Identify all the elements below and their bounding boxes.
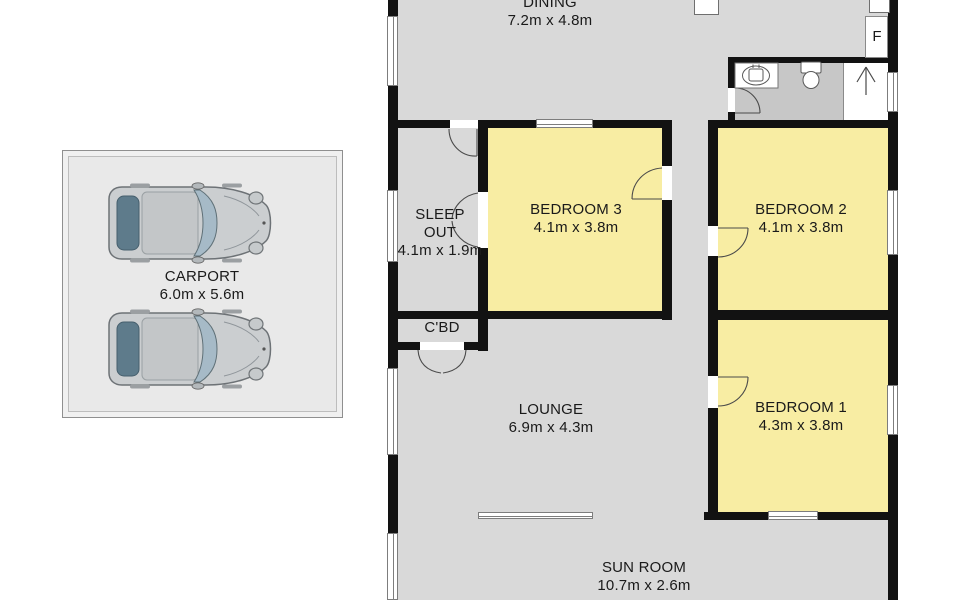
wall xyxy=(708,128,718,226)
window xyxy=(387,533,398,600)
room-dims-sleep-out: 4.1m x 1.9m xyxy=(398,242,483,260)
window xyxy=(869,0,890,13)
room-dims-dining: 7.2m x 4.8m xyxy=(508,12,593,30)
wall xyxy=(708,320,718,376)
wall xyxy=(388,0,398,16)
room-dims-carport: 6.0m x 5.6m xyxy=(160,286,245,304)
room-dims-lounge: 6.9m x 4.3m xyxy=(509,419,594,437)
room-dims-sun-room: 10.7m x 2.6m xyxy=(597,577,690,595)
wall xyxy=(388,311,672,319)
window xyxy=(387,190,398,262)
fridge-label: F xyxy=(872,28,881,46)
room-label-bedroom1: BEDROOM 1 4.3m x 3.8m xyxy=(755,399,847,435)
wall xyxy=(708,256,718,310)
door-opening xyxy=(694,0,719,15)
window xyxy=(768,511,818,520)
wall xyxy=(708,120,898,128)
floor-plan: DINING 7.2m x 4.8m SLEEP OUT 4.1m x 1.9m… xyxy=(0,0,960,600)
wall xyxy=(728,112,735,120)
wall xyxy=(396,342,420,350)
door-opening xyxy=(708,376,718,408)
window xyxy=(536,119,593,128)
room-dims-bedroom3: 4.1m x 3.8m xyxy=(530,219,622,237)
wall xyxy=(388,455,398,533)
room-label-sun-room: SUN ROOM 10.7m x 2.6m xyxy=(597,559,690,595)
room-label-bedroom2: BEDROOM 2 4.1m x 3.8m xyxy=(755,201,847,237)
room-label-lounge: LOUNGE 6.9m x 4.3m xyxy=(509,401,594,437)
window xyxy=(478,512,593,519)
wall xyxy=(888,255,898,385)
window xyxy=(887,72,898,112)
room-label-cupboard: C'BD xyxy=(424,319,459,337)
door-opening xyxy=(708,226,718,256)
wall xyxy=(388,120,450,128)
wall xyxy=(662,120,672,320)
door-opening xyxy=(450,120,478,128)
window xyxy=(387,368,398,455)
room-dims-bedroom2: 4.1m x 3.8m xyxy=(755,219,847,237)
door-opening xyxy=(420,342,464,350)
window xyxy=(887,385,898,435)
room-dims-bedroom1: 4.3m x 3.8m xyxy=(755,417,847,435)
room-label-carport: CARPORT 6.0m x 5.6m xyxy=(160,268,245,304)
door-opening xyxy=(662,166,672,200)
window xyxy=(887,190,898,255)
room-label-sleep-out: SLEEP OUT 4.1m x 1.9m xyxy=(398,206,483,260)
door-opening xyxy=(728,88,735,112)
wall xyxy=(388,86,398,190)
bathroom-floor xyxy=(735,63,843,120)
wall xyxy=(728,57,735,88)
room-label-bedroom3: BEDROOM 3 4.1m x 3.8m xyxy=(530,201,622,237)
wall xyxy=(464,342,488,350)
shower-floor xyxy=(843,63,889,120)
wall xyxy=(728,57,888,63)
wall xyxy=(708,310,898,320)
room-label-dining: DINING 7.2m x 4.8m xyxy=(508,0,593,30)
window xyxy=(387,16,398,86)
wall xyxy=(708,408,718,512)
